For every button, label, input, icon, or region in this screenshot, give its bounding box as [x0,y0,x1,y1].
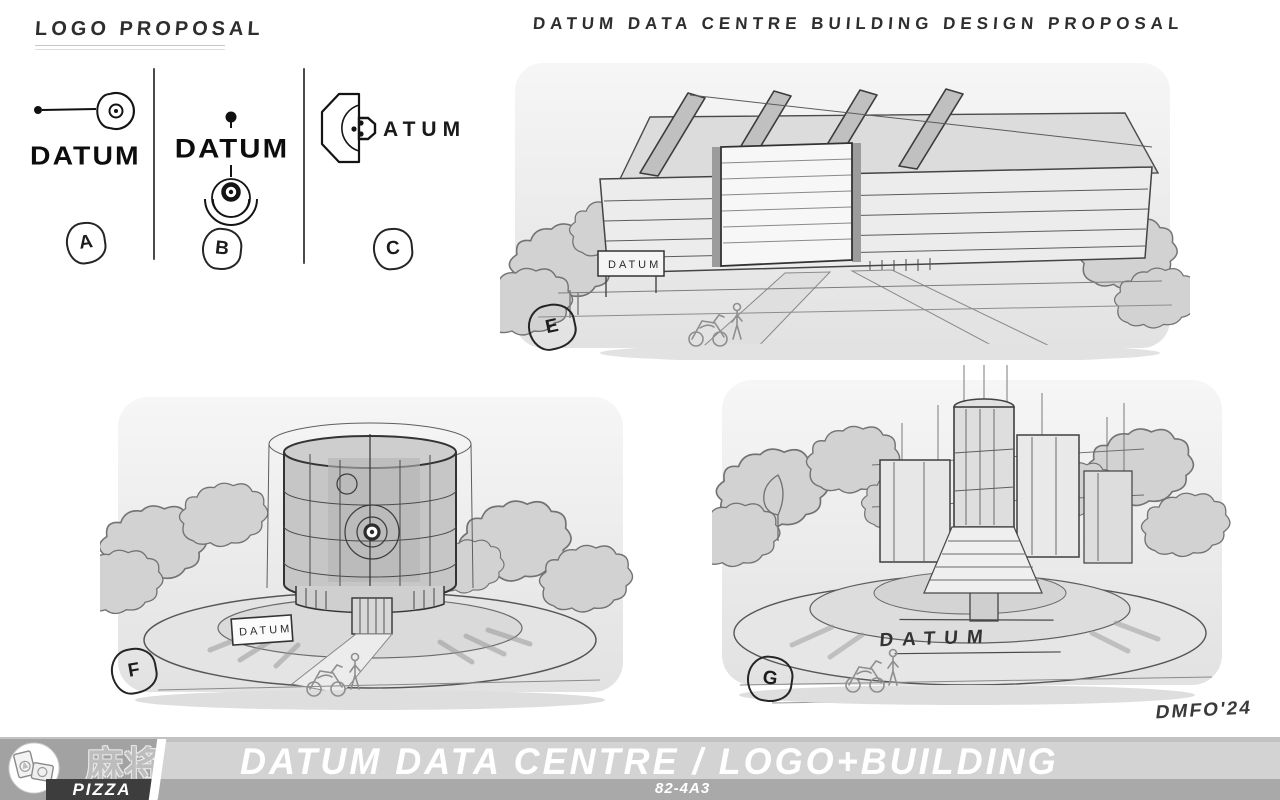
footer-title: DATUM DATA CENTRE / LOGO+BUILDING [240,741,1059,784]
logo-a-label: A [63,219,108,266]
brand-pizza-text: PIZZA [72,780,131,800]
footer-code-band: 82-4A3 [0,779,1280,800]
logo-a-letter: A [78,231,95,255]
logo-b-icon [172,165,292,231]
heading-underline-2 [35,49,225,50]
building-sketch-e: DATUM [500,55,1190,360]
sign-g-text: DATUM [879,626,993,651]
logo-c-letter: C [385,237,401,260]
sketch-e-letter: E [544,315,561,339]
logo-c-icon: ATUM [315,88,475,178]
logo-a-icon [30,88,148,136]
building-proposal-heading: DATUM DATA CENTRE BUILDING DESIGN PROPOS… [532,14,1184,34]
logo-b-letter: B [214,237,230,260]
sketch-g-letter: G [761,667,779,691]
footer-bar: DATUM DATA CENTRE / LOGO+BUILDING 82-4A3… [0,737,1280,800]
logo-proposal-heading: LOGO PROPOSAL [34,18,264,41]
brand-pizza-band: PIZZA [46,779,158,800]
logo-a-wordmark: DATUM [30,142,154,171]
logo-divider-2 [303,68,305,264]
sheet-code: 82-4A3 [655,780,710,797]
heading-underline [35,45,225,46]
sign-e-text: DATUM [608,259,661,271]
design-proposal-sheet: LOGO PROPOSAL DATUM DATA CENTRE BUILDING… [0,0,1280,800]
logo-c-label: C [371,226,415,271]
studio-brand-block: 麻将 PIZZA [0,739,158,800]
footer-title-band: DATUM DATA CENTRE / LOGO+BUILDING [0,742,1280,779]
logo-option-a: DATUM [30,88,148,172]
artist-signature: DMFO'24 [1154,698,1253,725]
sketch-f-letter: F [126,659,141,683]
building-sketch-g: DATUM [712,365,1232,710]
building-sketch-f: DATUM [100,372,640,710]
logo-option-c: ATUM [315,88,465,183]
logo-c-wordmark: ATUM [383,118,466,141]
logo-option-b: DATUM [172,108,292,236]
logo-b-wordmark: DATUM [169,134,295,164]
logo-b-dot [172,108,292,128]
